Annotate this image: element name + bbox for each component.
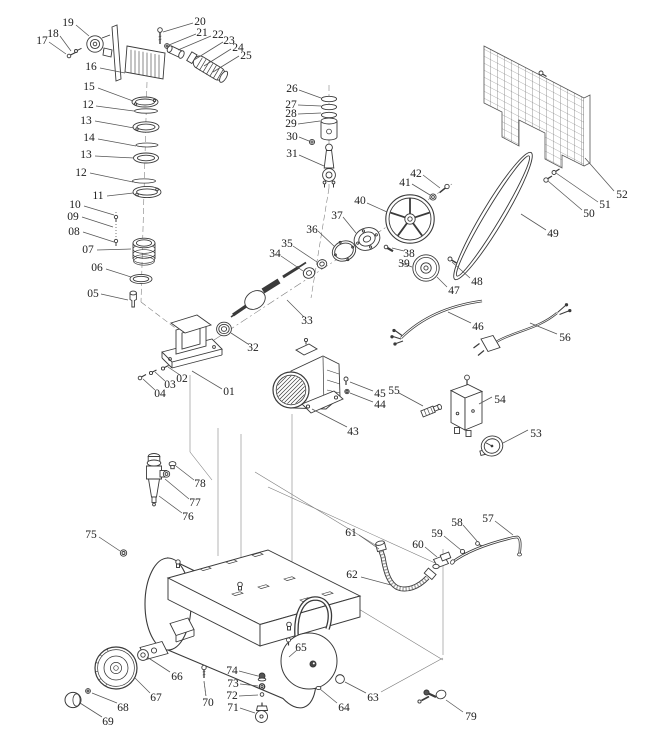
part-label-13: 13	[80, 149, 92, 161]
leader-line-10	[84, 206, 114, 215]
part-label-58: 58	[451, 517, 463, 529]
leader-line-69	[80, 703, 102, 717]
part-label-18: 18	[47, 28, 59, 40]
motor-pulley-47	[413, 255, 439, 281]
part-label-06: 06	[91, 262, 103, 274]
tank-end-cap-65	[281, 633, 337, 689]
leader-line-13	[95, 156, 134, 158]
leader-line-15	[98, 88, 133, 101]
part-label-37: 37	[331, 210, 343, 222]
ring-35	[316, 258, 328, 270]
part-label-44: 44	[374, 399, 386, 411]
leader-line-05	[101, 294, 128, 300]
part-label-46: 46	[472, 321, 484, 333]
leader-line-35	[293, 246, 317, 262]
leader-line-56	[530, 323, 557, 334]
crankshaft-33	[231, 263, 306, 318]
part-label-16: 16	[85, 61, 97, 73]
key-38-39	[384, 245, 393, 251]
part-label-03: 03	[164, 379, 176, 391]
part-label-43: 43	[347, 426, 359, 438]
leader-line-21	[169, 34, 196, 45]
fitting-58	[476, 542, 482, 546]
leader-line-79	[446, 700, 463, 712]
handle-23-25	[186, 51, 230, 85]
leader-line-07	[97, 249, 131, 250]
leader-line-61	[359, 535, 379, 549]
cylinder-head-16	[125, 46, 165, 79]
leader-line-63	[345, 682, 366, 693]
hose-62	[375, 540, 436, 589]
gasket-06	[130, 274, 152, 283]
part-label-04: 04	[154, 388, 166, 400]
leader-line-18	[60, 36, 71, 51]
leader-line-76	[159, 496, 182, 513]
leader-line-60	[425, 547, 437, 557]
part-label-12: 12	[82, 99, 94, 111]
part-label-31: 31	[286, 148, 298, 160]
part-label-08: 08	[68, 226, 80, 238]
leader-line-47	[437, 277, 447, 287]
part-label-52: 52	[616, 189, 628, 201]
leader-line-37	[343, 217, 356, 233]
leader-line-17	[49, 42, 66, 54]
bearing-32	[217, 322, 232, 336]
leader-line-26	[299, 90, 321, 98]
leader-line-25	[213, 56, 239, 72]
leader-line-27	[298, 105, 321, 106]
part-label-48: 48	[471, 276, 483, 288]
part-label-54: 54	[494, 394, 506, 406]
part-label-29: 29	[285, 118, 297, 130]
head-gasket-15	[132, 97, 158, 107]
valve-plate-13-lower	[134, 153, 159, 163]
part-label-07: 07	[82, 244, 94, 256]
leader-line-31	[299, 155, 324, 166]
parts-diagram-page: 0102030405060708091011121314131215161718…	[0, 0, 649, 755]
part-label-74: 74	[226, 665, 238, 677]
part-label-33: 33	[301, 315, 313, 327]
hubcap-69	[65, 692, 81, 707]
power-cord-56	[474, 304, 572, 356]
leader-line-13	[95, 121, 134, 128]
leader-line-46	[448, 312, 471, 323]
leader-line-70	[204, 681, 206, 696]
leader-line-50	[548, 181, 582, 210]
leader-line-59	[444, 536, 461, 550]
leader-line-36	[318, 231, 335, 247]
wire-46	[391, 301, 482, 345]
plug-05	[130, 291, 136, 307]
part-label-75: 75	[85, 529, 97, 541]
wheel-66	[95, 647, 137, 689]
flywheel-40	[386, 195, 434, 243]
crankcase-01	[162, 315, 222, 368]
valve-plate-11	[133, 186, 161, 197]
part-label-70: 70	[202, 697, 214, 709]
part-label-35: 35	[281, 238, 293, 250]
part-label-32: 32	[247, 342, 259, 354]
part-label-65: 65	[295, 642, 307, 654]
leader-line-45	[350, 382, 373, 391]
leader-line-34	[281, 256, 303, 271]
leader-line-78	[176, 466, 194, 480]
part-label-72: 72	[226, 690, 238, 702]
part-label-40: 40	[354, 195, 366, 207]
leader-line-14	[98, 139, 136, 146]
part-label-13: 13	[80, 115, 92, 127]
part-label-67: 67	[150, 692, 162, 704]
part-label-77: 77	[189, 497, 201, 509]
part-label-59: 59	[431, 528, 443, 540]
fitting-55	[421, 403, 443, 417]
leader-line-01	[192, 371, 222, 389]
part-label-68: 68	[117, 702, 129, 714]
leader-line-20	[163, 23, 193, 32]
bolt-70	[202, 665, 206, 678]
part-label-78: 78	[194, 478, 206, 490]
part-label-14: 14	[83, 132, 95, 144]
part-label-25: 25	[240, 50, 252, 62]
part-label-45: 45	[374, 388, 386, 400]
part-label-66: 66	[171, 671, 183, 683]
leader-line-28	[298, 113, 321, 114]
leader-line-64	[320, 689, 337, 703]
part-label-51: 51	[599, 199, 611, 211]
part-label-62: 62	[346, 569, 358, 581]
part-label-11: 11	[92, 190, 103, 202]
motor-bolts-44-45	[344, 377, 349, 394]
part-label-09: 09	[67, 211, 79, 223]
leader-line-12	[96, 106, 134, 111]
leader-line-72	[239, 695, 258, 696]
part-label-42: 42	[410, 168, 422, 180]
leader-line-04	[143, 379, 155, 390]
part-label-56: 56	[559, 332, 571, 344]
part-label-53: 53	[530, 428, 542, 440]
screws-17-18	[67, 48, 81, 58]
leader-line-57	[495, 521, 513, 535]
leader-line-08	[83, 232, 114, 242]
part-label-55: 55	[388, 385, 400, 397]
v-belt-49	[445, 147, 540, 285]
leader-line-68	[92, 693, 117, 703]
leader-line-23	[194, 42, 223, 60]
part-label-39: 39	[398, 258, 410, 270]
leader-line-09	[82, 217, 113, 227]
bolt-68	[86, 689, 91, 694]
leader-line-32	[231, 333, 248, 344]
motor-43	[259, 338, 343, 413]
leader-line-29	[298, 121, 320, 124]
diagram-canvas: 0102030405060708091011121314131215161718…	[0, 0, 649, 755]
valve-shims-12-14	[133, 109, 159, 183]
part-label-36: 36	[306, 224, 318, 236]
leader-line-06	[106, 269, 131, 277]
leader-line-41	[412, 184, 430, 195]
part-label-34: 34	[269, 248, 281, 260]
washer-67	[138, 650, 149, 661]
part-label-30: 30	[286, 131, 298, 143]
part-label-60: 60	[412, 539, 424, 551]
leader-line-49	[521, 214, 546, 230]
part-label-47: 47	[448, 285, 460, 297]
part-label-49: 49	[547, 228, 559, 240]
part-label-21: 21	[196, 27, 208, 39]
part-label-64: 64	[338, 702, 350, 714]
elbow-60	[433, 552, 451, 569]
part-label-79: 79	[465, 711, 477, 723]
leader-line-44	[350, 393, 373, 402]
leader-line-16	[100, 68, 125, 73]
leader-line-30	[299, 137, 309, 141]
leader-line-51	[556, 173, 598, 202]
nut-75	[120, 550, 126, 556]
leader-line-77	[165, 479, 189, 499]
piston-rings-26-28	[321, 96, 336, 117]
leader-line-40	[367, 203, 387, 212]
part-label-50: 50	[583, 208, 595, 220]
part-label-10: 10	[69, 199, 81, 211]
leader-line-19	[76, 25, 89, 36]
leader-line-67	[135, 678, 150, 693]
leader-line-38	[392, 248, 404, 251]
part-label-41: 41	[399, 177, 411, 189]
part-label-02: 02	[176, 373, 188, 385]
leader-line-52	[585, 158, 614, 191]
leader-line-75	[99, 537, 120, 551]
part-label-22: 22	[212, 29, 224, 41]
part-label-57: 57	[482, 513, 494, 525]
leader-line-55	[399, 393, 423, 406]
dome-nut-78	[169, 462, 176, 469]
leader-line-53	[503, 430, 528, 443]
valve-plate-13-upper	[133, 122, 159, 132]
part-label-15: 15	[83, 81, 95, 93]
leader-line-43	[312, 409, 347, 427]
leader-line-71	[240, 708, 255, 713]
part-label-69: 69	[102, 716, 114, 728]
leader-line-58	[463, 525, 477, 541]
leader-line-12	[90, 173, 133, 182]
leader-line-42	[423, 175, 440, 188]
bolts-02-04	[138, 366, 168, 380]
part-label-71: 71	[227, 702, 239, 714]
part-label-17: 17	[36, 35, 48, 47]
pressure-switch-54	[451, 375, 482, 436]
connecting-rod-31	[323, 144, 336, 187]
fitting-22	[166, 44, 185, 59]
leader-line-11	[107, 193, 133, 196]
belt-guard-grille-52	[484, 46, 590, 168]
washer-41	[430, 194, 436, 200]
bolt-42	[440, 184, 450, 192]
screws-08-10	[114, 212, 117, 247]
part-label-76: 76	[182, 511, 194, 523]
cylinder-07	[133, 238, 155, 265]
part-label-05: 05	[87, 288, 99, 300]
part-label-12: 12	[75, 167, 87, 179]
part-label-63: 63	[367, 692, 379, 704]
part-label-01: 01	[223, 386, 235, 398]
part-label-73: 73	[227, 678, 239, 690]
leader-line-66	[147, 657, 170, 672]
fitting-79	[418, 689, 447, 703]
part-label-61: 61	[345, 527, 357, 539]
part-label-19: 19	[62, 17, 74, 29]
part-label-26: 26	[286, 83, 298, 95]
pressure-gauge-53	[477, 434, 505, 459]
